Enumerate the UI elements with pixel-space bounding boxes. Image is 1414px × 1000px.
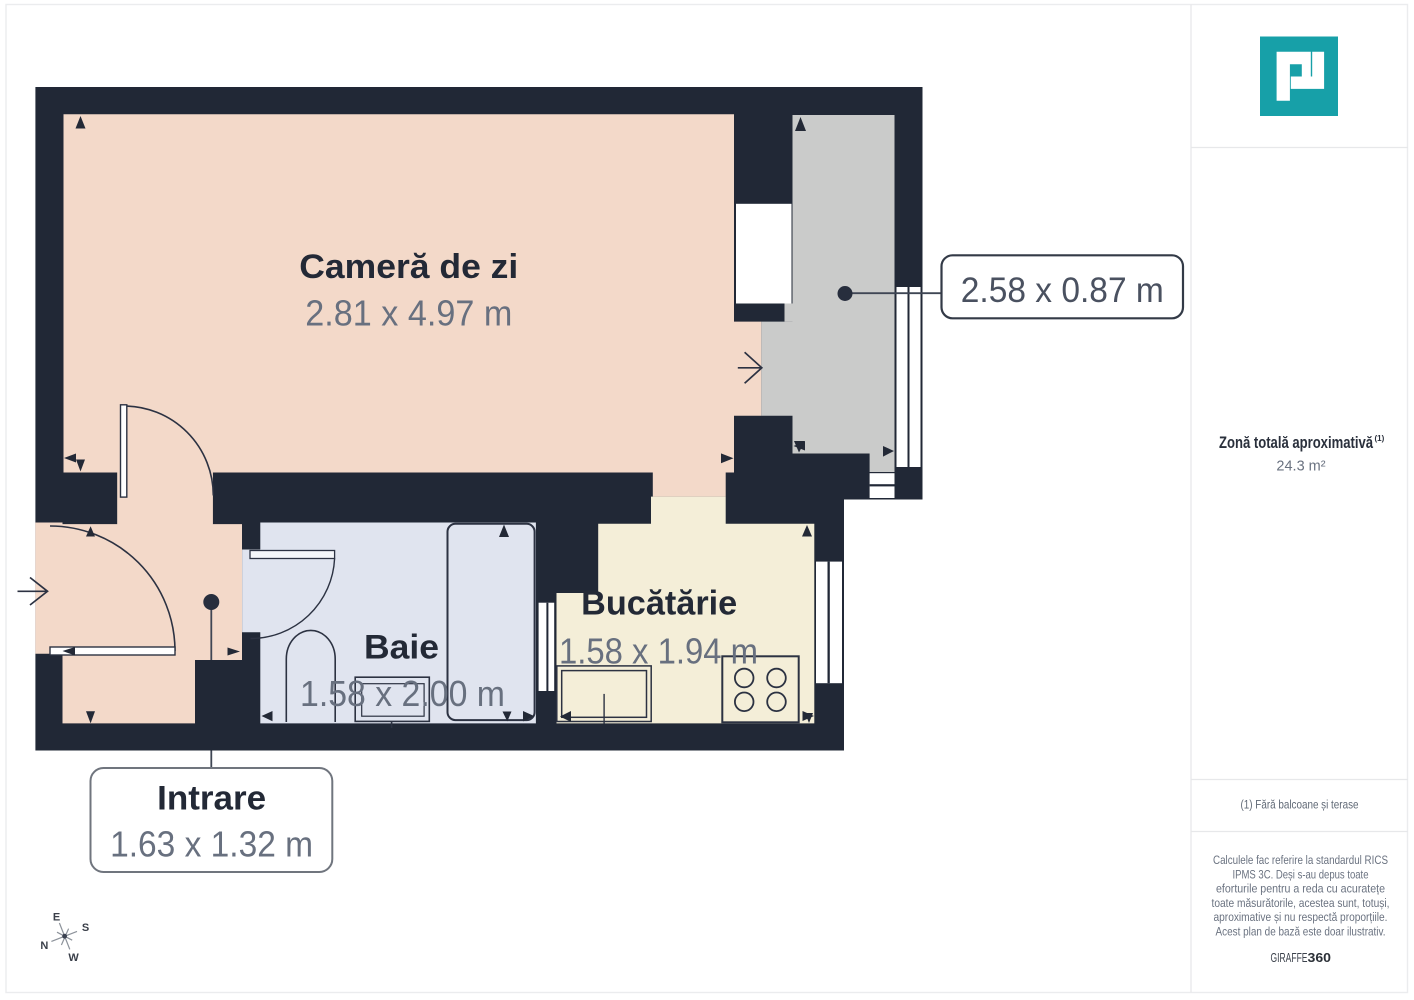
svg-text:Baie: Baie <box>364 629 439 667</box>
svg-text:Calculele fac referire la stan: Calculele fac referire la standardul RIC… <box>1213 853 1388 867</box>
svg-text:Acest plan de bază este doar i: Acest plan de bază este doar ilustrativ. <box>1216 924 1386 938</box>
svg-text:2.81 x 4.97 m: 2.81 x 4.97 m <box>305 293 512 334</box>
svg-text:Bucătărie: Bucătărie <box>581 585 737 623</box>
svg-text:Zonă totală aproximativă: Zonă totală aproximativă <box>1219 434 1374 452</box>
svg-text:24.3 m²: 24.3 m² <box>1276 459 1325 475</box>
svg-text:aproximative și nu respectă pr: aproximative și nu respectă proporțiile. <box>1214 910 1388 924</box>
svg-text:E: E <box>53 911 60 923</box>
svg-text:S: S <box>82 922 89 934</box>
svg-text:W: W <box>68 952 79 964</box>
svg-text:1.58 x 1.94 m: 1.58 x 1.94 m <box>559 631 758 672</box>
svg-text:N: N <box>40 940 48 952</box>
svg-text:toate măsurătorile, acestea su: toate măsurătorile, acestea sunt, totuși… <box>1212 896 1390 910</box>
svg-text:Cameră de zi: Cameră de zi <box>299 248 518 286</box>
svg-text:Intrare: Intrare <box>157 780 266 818</box>
svg-text:1.63 x 1.32 m: 1.63 x 1.32 m <box>110 824 313 865</box>
svg-text:360: 360 <box>1308 950 1332 965</box>
svg-text:2.58 x 0.87 m: 2.58 x 0.87 m <box>961 270 1164 310</box>
svg-text:(1) Fără balcoane și terase: (1) Fără balcoane și terase <box>1241 798 1359 812</box>
svg-text:IPMS 3C. Deși s-au depus toate: IPMS 3C. Deși s-au depus toate <box>1233 867 1369 881</box>
svg-text:eforturile pentru a reda cu ac: eforturile pentru a reda cu acuratețe <box>1216 882 1385 896</box>
svg-text:1.58 x 2.00 m: 1.58 x 2.00 m <box>300 673 505 714</box>
svg-text:GIRAFFE: GIRAFFE <box>1271 950 1308 965</box>
svg-text:(1): (1) <box>1375 434 1385 443</box>
